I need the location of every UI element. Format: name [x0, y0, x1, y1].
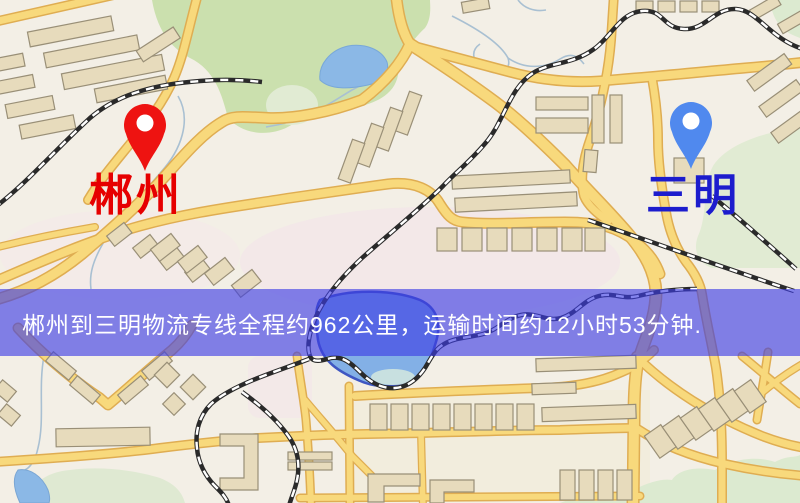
origin-pin-hole [137, 115, 154, 132]
destination-pin-icon [666, 98, 716, 170]
route-info-text: 郴州到三明物流专线全程约962公里，运输时间约12小时53分钟. [0, 306, 702, 340]
destination-pin-hole [683, 113, 700, 130]
map-screenshot: 郴州 三明 郴州到三明物流专线全程约962公里，运输时间约12小时53分钟. [0, 0, 800, 503]
origin-pin-body [124, 104, 166, 171]
route-info-banner: 郴州到三明物流专线全程约962公里，运输时间约12小时53分钟. [0, 289, 800, 356]
origin-city-label: 郴州 [60, 172, 212, 220]
map-canvas [0, 0, 800, 503]
origin-pin-icon [120, 100, 170, 172]
destination-pin-body [670, 102, 712, 169]
destination-city-label: 三明 [617, 172, 769, 220]
